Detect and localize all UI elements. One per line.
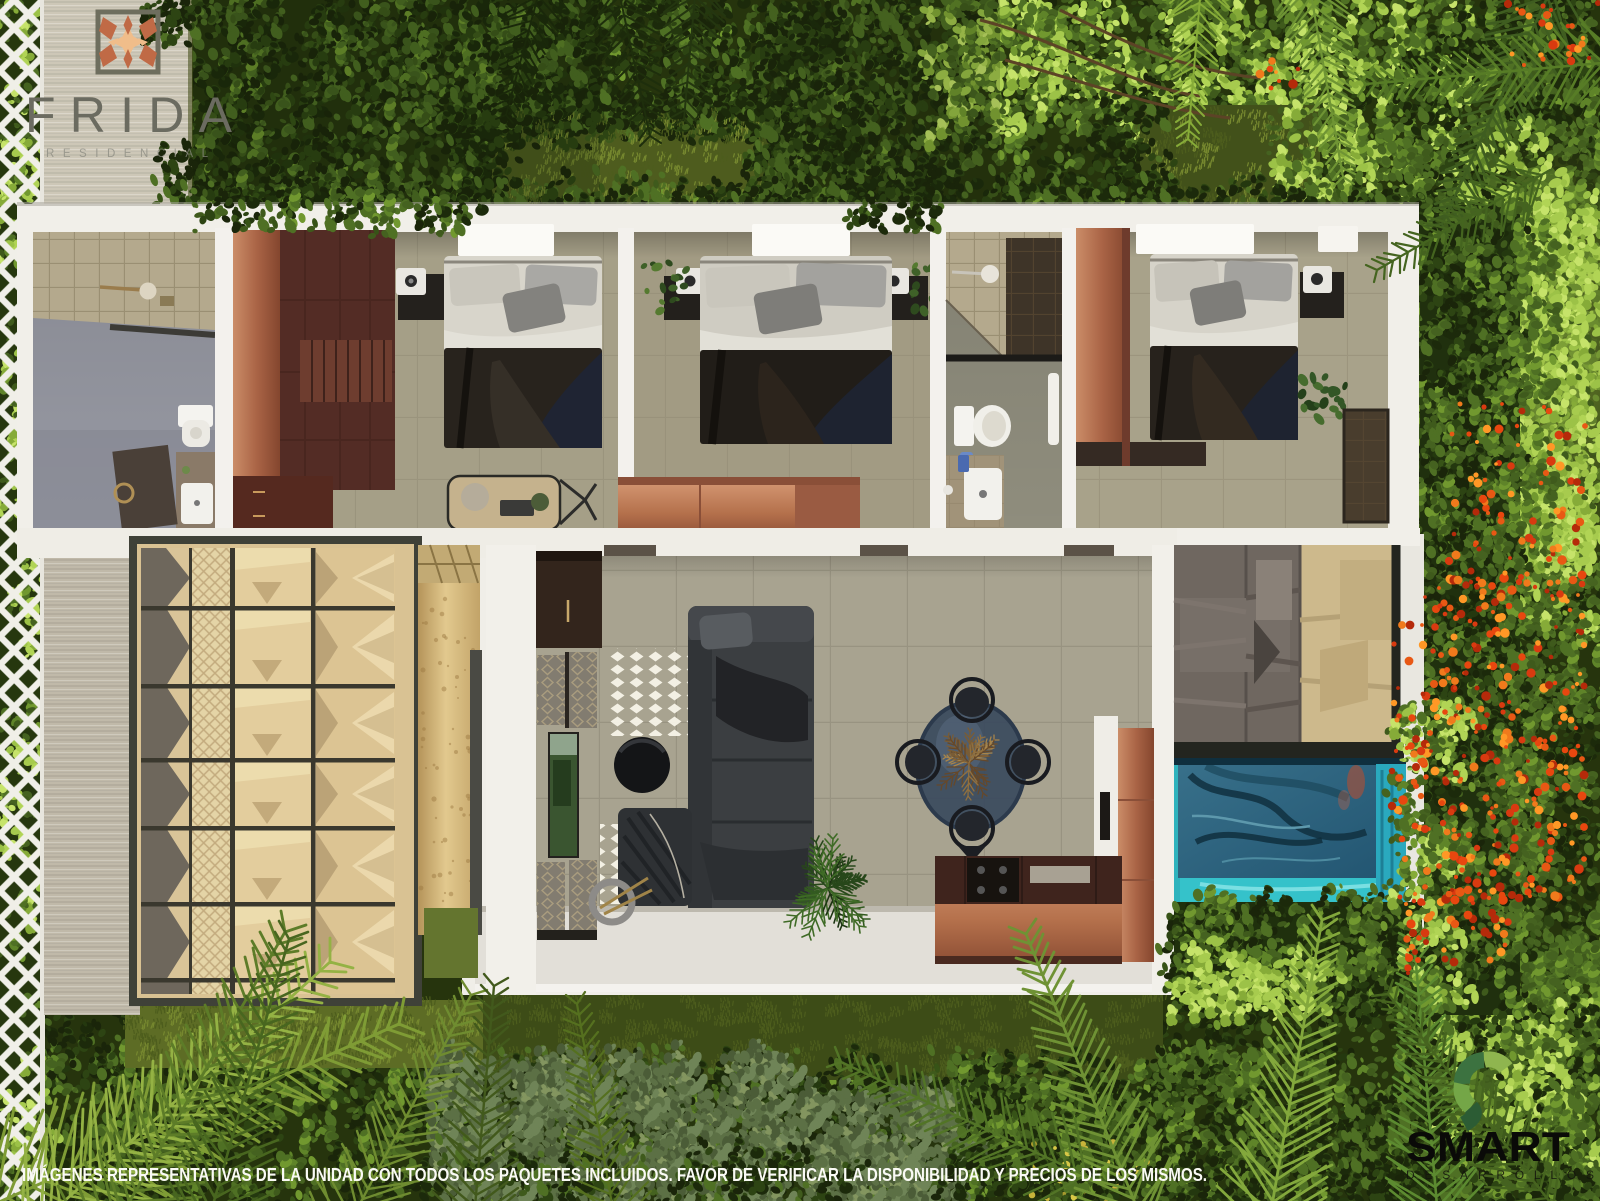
svg-text:IMÁGENES REPRESENTATIVAS DE LA: IMÁGENES REPRESENTATIVAS DE LA UNIDAD CO… (22, 1164, 1207, 1185)
svg-text:SMART: SMART (1406, 1123, 1570, 1170)
